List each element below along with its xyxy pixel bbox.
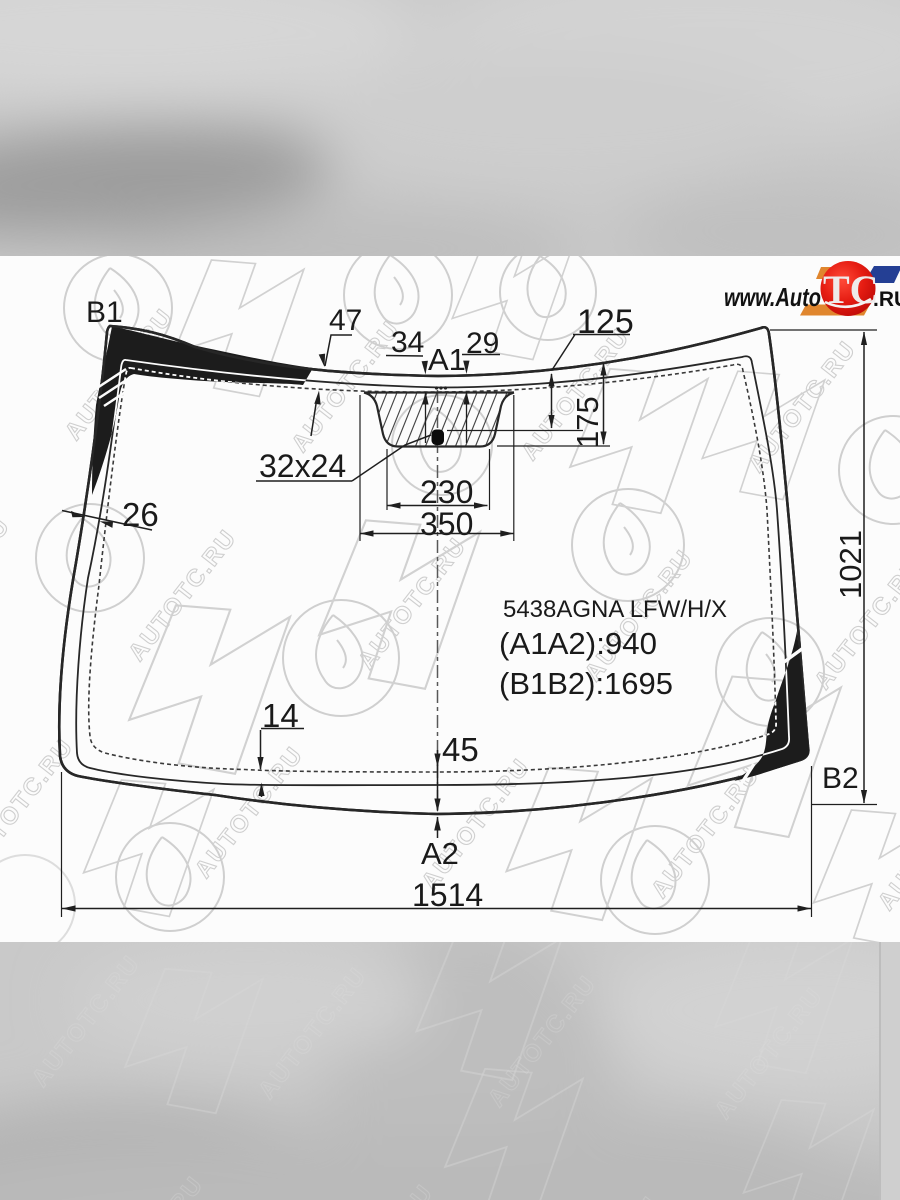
svg-text:26: 26 — [122, 496, 159, 533]
svg-text:45: 45 — [442, 731, 479, 768]
svg-text:32x24: 32x24 — [259, 448, 346, 484]
svg-text:34: 34 — [391, 326, 424, 359]
svg-text:47: 47 — [329, 304, 362, 337]
svg-text:(B1B2):1695: (B1B2):1695 — [499, 666, 673, 701]
svg-text:1021: 1021 — [833, 530, 868, 599]
svg-text:230: 230 — [420, 474, 473, 510]
svg-text:B1: B1 — [86, 296, 123, 329]
svg-text:175: 175 — [570, 396, 605, 448]
svg-text:A1: A1 — [428, 342, 466, 377]
svg-text:1514: 1514 — [412, 877, 483, 913]
svg-text:A2: A2 — [421, 836, 459, 871]
svg-text:5438AGNA LFW/H/X: 5438AGNA LFW/H/X — [503, 596, 727, 623]
svg-text:350: 350 — [420, 506, 473, 542]
svg-text:B2: B2 — [822, 762, 859, 795]
svg-text:.RU: .RU — [873, 288, 900, 311]
svg-text:www.Auto: www.Auto — [724, 282, 821, 312]
svg-text:29: 29 — [466, 327, 499, 360]
svg-text:14: 14 — [262, 697, 299, 734]
svg-text:(A1A2):940: (A1A2):940 — [499, 626, 657, 661]
svg-text:125: 125 — [577, 303, 634, 341]
